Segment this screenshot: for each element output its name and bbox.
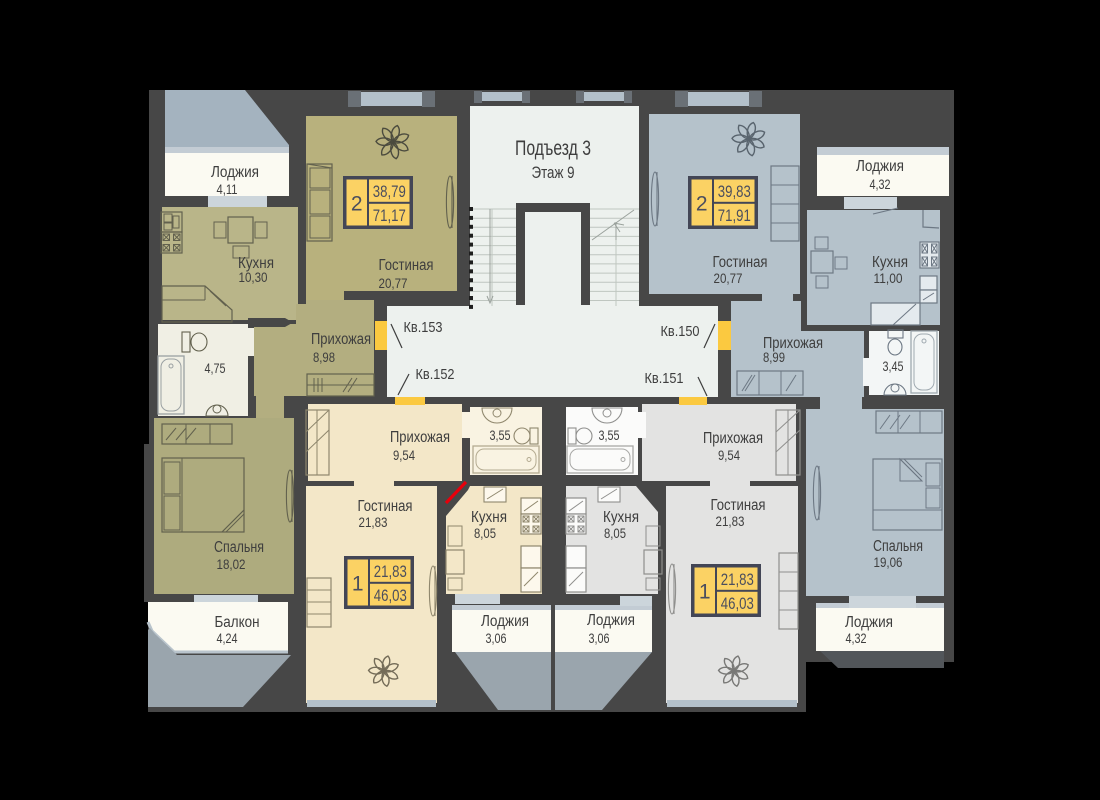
svg-text:4,32: 4,32 bbox=[846, 630, 867, 646]
svg-text:Прихожая: Прихожая bbox=[390, 429, 450, 446]
svg-text:4,24: 4,24 bbox=[217, 630, 238, 646]
svg-text:Прихожая: Прихожая bbox=[311, 331, 371, 348]
svg-text:38,79: 38,79 bbox=[373, 182, 406, 201]
svg-text:8,05: 8,05 bbox=[474, 525, 496, 541]
svg-text:39,83: 39,83 bbox=[718, 182, 751, 201]
svg-text:21,83: 21,83 bbox=[716, 513, 745, 529]
svg-text:Подъезд 3: Подъезд 3 bbox=[515, 137, 591, 160]
svg-text:9,54: 9,54 bbox=[718, 447, 740, 463]
svg-text:19,06: 19,06 bbox=[874, 554, 903, 570]
svg-text:Кв.152: Кв.152 bbox=[416, 367, 455, 383]
svg-text:Спальня: Спальня bbox=[214, 539, 264, 556]
svg-text:Балкон: Балкон bbox=[215, 614, 260, 631]
svg-text:20,77: 20,77 bbox=[714, 270, 743, 286]
svg-text:3,45: 3,45 bbox=[883, 358, 904, 374]
svg-text:Спальня: Спальня bbox=[873, 538, 923, 555]
svg-text:Лоджия: Лоджия bbox=[587, 612, 635, 629]
svg-text:3,55: 3,55 bbox=[490, 427, 511, 443]
svg-text:Кв.150: Кв.150 bbox=[661, 324, 700, 340]
svg-text:3,06: 3,06 bbox=[486, 630, 507, 646]
svg-text:3,55: 3,55 bbox=[599, 427, 620, 443]
svg-text:Кв.151: Кв.151 bbox=[645, 371, 684, 387]
svg-text:Этаж 9: Этаж 9 bbox=[532, 163, 575, 182]
svg-text:Кухня: Кухня bbox=[603, 509, 639, 526]
svg-text:46,03: 46,03 bbox=[721, 594, 754, 613]
svg-text:11,00: 11,00 bbox=[874, 270, 903, 286]
svg-text:21,83: 21,83 bbox=[374, 562, 407, 581]
svg-text:Гостиная: Гостиная bbox=[713, 254, 768, 271]
svg-text:Кв.153: Кв.153 bbox=[404, 320, 443, 336]
svg-text:21,83: 21,83 bbox=[359, 514, 388, 530]
svg-text:4,75: 4,75 bbox=[205, 360, 226, 376]
svg-text:Лоджия: Лоджия bbox=[211, 164, 259, 181]
svg-text:Кухня: Кухня bbox=[872, 254, 908, 271]
svg-text:2: 2 bbox=[696, 193, 708, 216]
svg-text:71,17: 71,17 bbox=[373, 206, 406, 225]
svg-text:Лоджия: Лоджия bbox=[481, 613, 529, 630]
svg-text:20,77: 20,77 bbox=[379, 275, 408, 291]
svg-text:10,30: 10,30 bbox=[239, 269, 268, 285]
svg-text:71,91: 71,91 bbox=[718, 206, 751, 225]
svg-text:18,02: 18,02 bbox=[217, 556, 246, 572]
svg-text:21,83: 21,83 bbox=[721, 570, 754, 589]
svg-text:8,05: 8,05 bbox=[604, 525, 626, 541]
svg-text:Прихожая: Прихожая bbox=[703, 430, 763, 447]
svg-text:8,99: 8,99 bbox=[763, 349, 785, 365]
svg-text:8,98: 8,98 bbox=[313, 349, 335, 365]
svg-text:Лоджия: Лоджия bbox=[856, 158, 904, 175]
svg-text:4,32: 4,32 bbox=[870, 176, 891, 192]
svg-text:4,11: 4,11 bbox=[217, 181, 238, 197]
svg-text:9,54: 9,54 bbox=[393, 447, 415, 463]
svg-text:Гостиная: Гостиная bbox=[711, 497, 766, 514]
svg-text:Гостиная: Гостиная bbox=[358, 498, 413, 515]
svg-text:1: 1 bbox=[699, 581, 711, 604]
svg-text:Кухня: Кухня bbox=[471, 509, 507, 526]
svg-text:3,06: 3,06 bbox=[589, 630, 610, 646]
svg-text:Лоджия: Лоджия bbox=[845, 614, 893, 631]
svg-text:1: 1 bbox=[352, 573, 364, 596]
svg-text:2: 2 bbox=[351, 193, 363, 216]
svg-text:Гостиная: Гостиная bbox=[379, 257, 434, 274]
svg-text:46,03: 46,03 bbox=[374, 586, 407, 605]
